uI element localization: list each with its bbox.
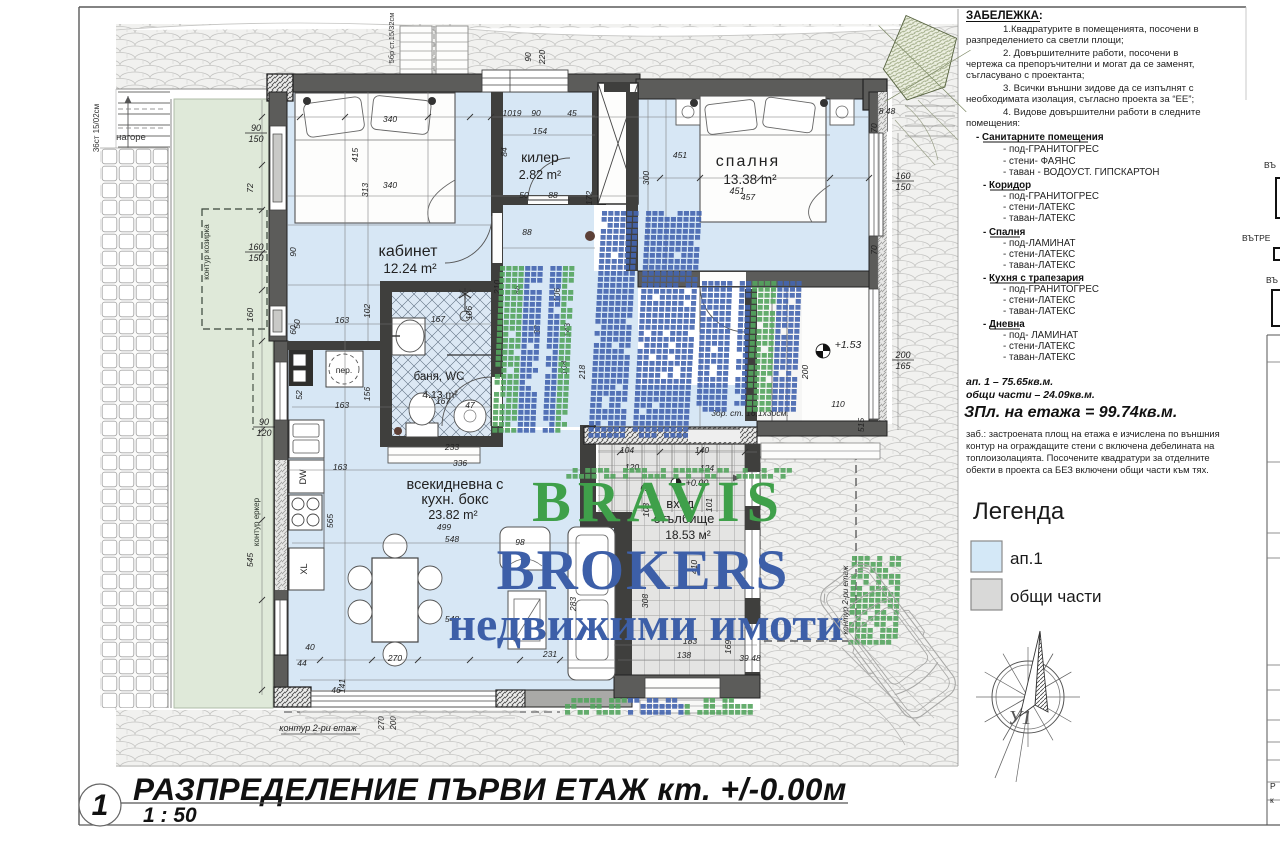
svg-text:съгласувано с проектанта;: съгласувано с проектанта; [966, 70, 1084, 81]
svg-text:спалня: спалня [716, 153, 780, 170]
svg-text:- под-ГРАНИТОГРЕС: - под-ГРАНИТОГРЕС [1003, 191, 1099, 202]
svg-text:+1.53: +1.53 [835, 339, 862, 351]
svg-text:Р: Р [1270, 781, 1276, 791]
svg-text:1 : 50: 1 : 50 [143, 804, 197, 827]
svg-text:165: 165 [895, 361, 911, 371]
svg-text:140: 140 [695, 445, 709, 455]
svg-text:помещения:: помещения: [966, 118, 1020, 129]
svg-text:всекидневна с: всекидневна с [407, 477, 504, 493]
svg-text:разпределението са светли площ: разпределението са светли площи; [966, 35, 1124, 46]
svg-text:- Дневна: - Дневна [983, 319, 1025, 330]
svg-text:У1: У1 [1008, 707, 1031, 729]
svg-text:ап.1: ап.1 [1010, 549, 1043, 568]
svg-text:- таван-ЛАТЕКС: - таван-ЛАТЕКС [1003, 213, 1075, 224]
svg-text:70: 70 [869, 245, 879, 255]
svg-text:172: 172 [584, 191, 594, 205]
svg-text:39: 39 [739, 653, 749, 663]
svg-text:обекти в проекта са БЕЗ включе: обекти в проекта са БЕЗ включени общи ча… [966, 464, 1209, 475]
svg-text:220: 220 [537, 50, 547, 65]
svg-text:ВЪ: ВЪ [1264, 160, 1276, 170]
svg-text:156: 156 [362, 387, 372, 401]
svg-text:ВЪ: ВЪ [1266, 275, 1278, 285]
svg-text:- таван-ЛАТЕКС: - таван-ЛАТЕКС [1003, 306, 1075, 317]
svg-text:необходимата изолация, съгласн: необходимата изолация, съгласно проекта … [966, 94, 1194, 105]
svg-text:270: 270 [387, 653, 402, 663]
svg-text:200: 200 [800, 365, 810, 380]
svg-text:ап. 1 – 75.65кв.м.: ап. 1 – 75.65кв.м. [966, 376, 1053, 388]
svg-text:- Коридор: - Коридор [983, 180, 1031, 191]
svg-text:120: 120 [256, 428, 271, 438]
svg-text:заб.: застроената площ на етаж: заб.: застроената площ на етажа е изчисл… [966, 428, 1220, 439]
svg-text:90: 90 [531, 108, 541, 118]
svg-text:кухн. бокс: кухн. бокс [421, 492, 488, 508]
svg-text:ЗАБЕЛЕЖКА:: ЗАБЕЛЕЖКА: [966, 10, 1043, 22]
svg-text:5бр ст.15/32см: 5бр ст.15/32см [387, 13, 396, 64]
svg-text:4. Видове довършителни работи: 4. Видове довършителни работи в следните [1003, 107, 1201, 118]
svg-text:47: 47 [465, 400, 475, 410]
svg-text:415: 415 [350, 148, 360, 162]
svg-text:515: 515 [856, 418, 866, 432]
svg-text:чертежа са препоръчителни и мо: чертежа са препоръчителни и могат да се … [966, 59, 1194, 70]
svg-text:- таван-ЛАТЕКС: - таван-ЛАТЕКС [1003, 352, 1075, 363]
svg-text:2. Довършителните работи, посо: 2. Довършителните работи, посочени в [1003, 48, 1178, 59]
svg-text:167: 167 [431, 314, 445, 324]
svg-text:1: 1 [92, 789, 109, 822]
svg-text:102: 102 [362, 304, 372, 318]
svg-text:340: 340 [383, 180, 397, 190]
svg-text:- Кухня с трапезария: - Кухня с трапезария [983, 273, 1084, 284]
svg-text:- Спалня: - Спалня [983, 227, 1026, 238]
svg-text:Легенда: Легенда [973, 498, 1065, 525]
svg-text:451: 451 [673, 150, 687, 160]
svg-text:- таван-ЛАТЕКС: - таван-ЛАТЕКС [1003, 260, 1075, 271]
svg-text:200: 200 [894, 350, 910, 360]
svg-text:336: 336 [453, 458, 467, 468]
svg-text:90: 90 [288, 247, 298, 257]
svg-text:1.Квадратурите в помещенията,: 1.Квадратурите в помещенията, посочени в [1003, 24, 1199, 35]
svg-text:контур козирка: контур козирка [202, 224, 211, 280]
svg-text:8 48: 8 48 [879, 106, 896, 116]
svg-text:45: 45 [567, 108, 577, 118]
svg-text:13.38 m²: 13.38 m² [723, 172, 777, 187]
svg-text:52: 52 [294, 390, 304, 400]
svg-text:340: 340 [383, 114, 397, 124]
svg-text:ВЪТРЕ: ВЪТРЕ [1242, 233, 1271, 243]
svg-text:нагоре: нагоре [116, 132, 146, 143]
svg-text:106: 106 [464, 306, 474, 320]
svg-text:88: 88 [548, 190, 558, 200]
svg-text:- стени- ФАЯНС: - стени- ФАЯНС [1003, 156, 1076, 167]
svg-text:к: к [1270, 795, 1274, 805]
svg-text:недвижими имоти: недвижими имоти [448, 598, 843, 651]
svg-text:- стени-ЛАТЕКС: - стени-ЛАТЕКС [1003, 249, 1075, 260]
svg-text:- Санитарните помещения: - Санитарните помещения [976, 132, 1104, 143]
svg-text:72: 72 [245, 183, 255, 193]
svg-text:313: 313 [360, 183, 370, 197]
svg-text:- стени-ЛАТЕКС: - стени-ЛАТЕКС [1003, 341, 1075, 352]
svg-text:48: 48 [751, 653, 761, 663]
svg-text:3. Всички външни зидове да се: 3. Всички външни зидове да се изпълнят с [1003, 83, 1194, 94]
svg-text:- стени-ЛАТЕКС: - стени-ЛАТЕКС [1003, 202, 1075, 213]
svg-text:90: 90 [523, 52, 533, 62]
svg-text:50: 50 [519, 190, 529, 200]
svg-text:2.82 m²: 2.82 m² [519, 168, 561, 182]
svg-text:- стени-ЛАТЕКС: - стени-ЛАТЕКС [1003, 295, 1075, 306]
svg-text:218: 218 [577, 365, 587, 380]
svg-text:233: 233 [444, 442, 459, 452]
svg-text:138: 138 [677, 650, 691, 660]
svg-text:23.82 m²: 23.82 m² [428, 508, 477, 522]
svg-text:- под-ГРАНИТОГРЕС: - под-ГРАНИТОГРЕС [1003, 144, 1099, 155]
svg-text:499: 499 [437, 522, 451, 532]
svg-text:баня, WC: баня, WC [414, 371, 465, 383]
svg-text:BROKERS: BROKERS [497, 539, 790, 602]
svg-text:топлоизолацията. Посочените кв: топлоизолацията. Посочените квадратури з… [966, 452, 1210, 463]
svg-text:88: 88 [522, 227, 532, 237]
svg-text:- под-ЛАМИНАТ: - под-ЛАМИНАТ [1003, 238, 1076, 249]
svg-text:104: 104 [620, 445, 634, 455]
svg-text:150: 150 [248, 134, 263, 144]
svg-text:451: 451 [729, 186, 744, 196]
svg-text:160: 160 [245, 308, 255, 322]
svg-text:- таван - ВОДОУСТ. ГИПСКАРТОН: - таван - ВОДОУСТ. ГИПСКАРТОН [1003, 167, 1159, 178]
svg-text:150: 150 [895, 182, 910, 192]
svg-text:84: 84 [499, 147, 509, 157]
svg-text:545: 545 [245, 553, 255, 567]
svg-text:548: 548 [445, 534, 459, 544]
svg-text:килер: килер [521, 149, 559, 165]
svg-text:контур на ограждащите стени с: контур на ограждащите стени с включена д… [966, 440, 1215, 451]
svg-text:150: 150 [248, 253, 263, 263]
svg-text:44: 44 [297, 658, 307, 668]
svg-text:163: 163 [335, 315, 349, 325]
svg-text:36ст 15/02см: 36ст 15/02см [92, 104, 101, 152]
svg-text:300: 300 [641, 171, 651, 185]
svg-text:общи части – 24.09кв.м.: общи части – 24.09кв.м. [966, 389, 1095, 401]
svg-text:4.13 m²: 4.13 m² [422, 389, 458, 401]
svg-text:110: 110 [831, 399, 845, 409]
svg-text:XL: XL [299, 563, 309, 574]
svg-text:1019: 1019 [503, 108, 522, 118]
svg-text:46: 46 [331, 685, 341, 695]
svg-text:154: 154 [533, 126, 547, 136]
svg-text:50: 50 [292, 319, 302, 329]
svg-text:РАЗПРЕДЕЛЕНИЕ ПЪРВИ ЕТАЖ кт. +: РАЗПРЕДЕЛЕНИЕ ПЪРВИ ЕТАЖ кт. +/-0.00м [133, 771, 847, 807]
svg-text:40: 40 [305, 642, 315, 652]
svg-text:90: 90 [251, 123, 261, 133]
svg-text:70: 70 [869, 123, 879, 133]
svg-text:90: 90 [259, 417, 269, 427]
svg-text:ЗПл. на етажа = 99.74кв.м.: ЗПл. на етажа = 99.74кв.м. [964, 404, 1177, 421]
svg-text:контур 2-ри етаж: контур 2-ри етаж [279, 723, 357, 733]
svg-text:160: 160 [248, 242, 263, 252]
svg-text:12.24 m²: 12.24 m² [383, 261, 437, 276]
svg-text:кабинет: кабинет [379, 243, 439, 260]
svg-text:565: 565 [325, 514, 335, 528]
svg-text:DW: DW [298, 469, 308, 484]
svg-text:163: 163 [333, 462, 347, 472]
svg-text:160: 160 [895, 171, 910, 181]
svg-text:BRAVIS: BRAVIS [532, 469, 786, 534]
svg-text:- под-ГРАНИТОГРЕС: - под-ГРАНИТОГРЕС [1003, 284, 1099, 295]
svg-text:- под- ЛАМИНАТ: - под- ЛАМИНАТ [1003, 330, 1078, 341]
svg-text:общи части: общи части [1010, 587, 1102, 606]
svg-text:пер.: пер. [336, 365, 352, 375]
svg-text:163: 163 [335, 400, 349, 410]
